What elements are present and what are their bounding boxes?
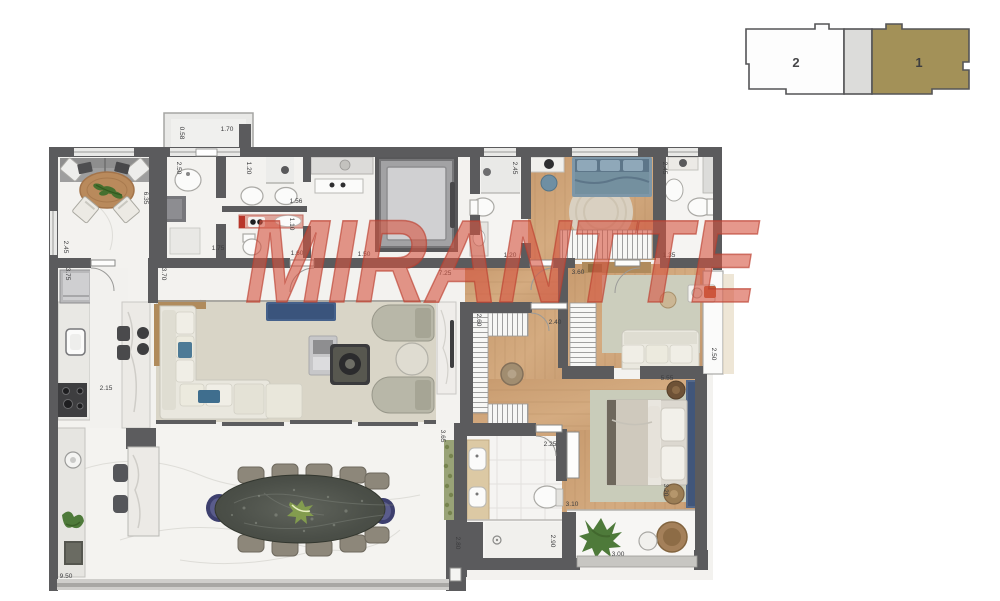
svg-text:2.50: 2.50: [175, 162, 182, 175]
svg-text:9.50: 9.50: [60, 573, 73, 580]
svg-text:MIRANTTE: MIRANTTE: [245, 196, 760, 327]
svg-text:2.45: 2.45: [62, 241, 69, 254]
svg-text:1.20: 1.20: [245, 162, 252, 175]
svg-text:2.15: 2.15: [100, 385, 113, 392]
svg-text:2.50: 2.50: [710, 348, 717, 361]
svg-text:2.25: 2.25: [544, 441, 557, 448]
svg-text:0.58: 0.58: [178, 127, 185, 140]
svg-text:2.45: 2.45: [661, 162, 668, 175]
svg-text:2: 2: [792, 55, 799, 70]
svg-text:2.90: 2.90: [549, 535, 556, 548]
svg-text:3.75: 3.75: [64, 268, 71, 281]
svg-text:2.80: 2.80: [454, 537, 461, 550]
svg-text:3.00: 3.00: [612, 551, 625, 558]
svg-text:1.75: 1.75: [212, 245, 225, 252]
svg-text:3.20: 3.20: [662, 484, 669, 497]
svg-text:1: 1: [915, 55, 922, 70]
svg-text:3.10: 3.10: [566, 501, 579, 508]
svg-text:5.55: 5.55: [661, 375, 674, 382]
svg-text:6.35: 6.35: [142, 192, 149, 205]
svg-text:3.70: 3.70: [160, 268, 167, 281]
svg-text:3.65: 3.65: [439, 430, 446, 443]
svg-text:2.45: 2.45: [511, 162, 518, 175]
svg-text:1.70: 1.70: [221, 126, 234, 133]
